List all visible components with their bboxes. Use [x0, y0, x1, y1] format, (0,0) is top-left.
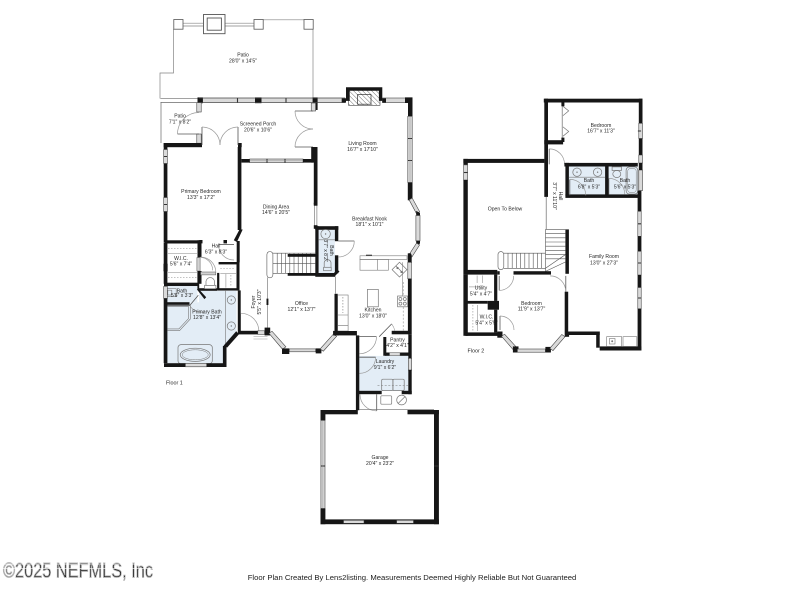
svg-text:7'1" x 8'2": 7'1" x 8'2"	[169, 119, 191, 125]
svg-text:13'0" x 18'0": 13'0" x 18'0"	[359, 313, 387, 319]
svg-text:5'5" x 10'3": 5'5" x 10'3"	[257, 289, 263, 314]
svg-text:4'2" x 4'1": 4'2" x 4'1"	[386, 343, 408, 349]
svg-text:3'7" x 11'10": 3'7" x 11'10"	[551, 182, 557, 210]
svg-text:5'4" x 4'7": 5'4" x 4'7"	[470, 291, 492, 297]
svg-text:Garage: Garage	[372, 455, 389, 461]
svg-text:6'8" x 5'3": 6'8" x 5'3"	[578, 184, 600, 190]
svg-text:Bath: Bath	[584, 178, 595, 184]
svg-text:©2025 NEFMLS, Inc: ©2025 NEFMLS, Inc	[3, 560, 153, 583]
svg-text:Family Room: Family Room	[589, 254, 619, 260]
svg-text:Floor Plan Created By Lens2lis: Floor Plan Created By Lens2listing. Meas…	[248, 573, 577, 582]
svg-text:5'6" x 7'4": 5'6" x 7'4"	[170, 262, 192, 268]
svg-text:14'6" x 20'5": 14'6" x 20'5"	[262, 210, 290, 216]
svg-text:20'4" x 23'2": 20'4" x 23'2"	[366, 461, 394, 467]
svg-text:12'8" x 13'4": 12'8" x 13'4"	[193, 315, 221, 321]
svg-text:3'7" x 8'2": 3'7" x 8'2"	[322, 239, 328, 261]
svg-text:13'0" x 27'3": 13'0" x 27'3"	[590, 260, 618, 266]
svg-text:Open To Below: Open To Below	[488, 207, 523, 213]
svg-text:20'6" x 10'6": 20'6" x 10'6"	[244, 128, 272, 134]
svg-text:Floor 1: Floor 1	[166, 381, 183, 387]
svg-text:Floor 2: Floor 2	[468, 349, 485, 355]
svg-text:13'3" x 17'2": 13'3" x 17'2"	[187, 195, 215, 201]
svg-text:16'7" x 17'10": 16'7" x 17'10"	[347, 147, 378, 153]
svg-text:28'0" x 14'5": 28'0" x 14'5"	[229, 59, 257, 65]
svg-text:Bath: Bath	[620, 178, 631, 184]
svg-text:16'7" x 11'3": 16'7" x 11'3"	[587, 129, 615, 135]
svg-text:5'6" x 3'3": 5'6" x 3'3"	[171, 293, 193, 299]
svg-text:9'1" x 6'2": 9'1" x 6'2"	[374, 365, 396, 371]
svg-text:11'9" x 13'7": 11'9" x 13'7"	[518, 307, 546, 313]
svg-text:12'1" x 13'7": 12'1" x 13'7"	[288, 307, 316, 313]
svg-text:6'3" x 8'3": 6'3" x 8'3"	[205, 249, 227, 255]
svg-text:18'1" x 10'1": 18'1" x 10'1"	[356, 222, 384, 228]
svg-text:5'6" x 5'3": 5'6" x 5'3"	[614, 184, 636, 190]
